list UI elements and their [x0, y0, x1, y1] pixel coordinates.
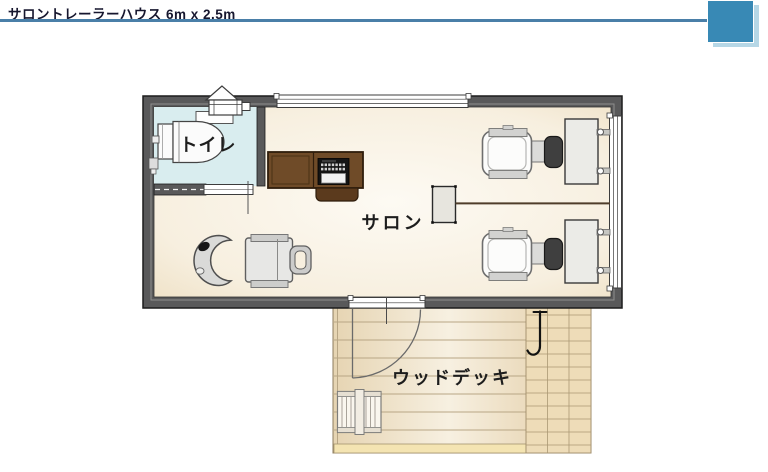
page: サロントレーラーハウス 6m x 2.5m: [0, 0, 768, 472]
floorplan-canvas: ウッドデッキ: [0, 0, 768, 472]
toilet-bottom-wall: [154, 184, 206, 195]
mirror-counter-2: [565, 220, 598, 283]
chair-back-pad-1: [545, 137, 563, 168]
deck-bench: [338, 390, 382, 435]
salon-partition: [431, 185, 457, 224]
toilet-partition-wall: [257, 107, 265, 186]
wood-deck: ウッドデッキ: [333, 302, 591, 453]
ribbon-window-right: [607, 113, 622, 291]
deck-label: ウッドデッキ: [392, 367, 512, 388]
salon-label: サロン: [362, 213, 425, 233]
deck-grid-section: [526, 302, 591, 453]
toilet-label: トイレ: [180, 135, 237, 155]
counter-stool: [316, 188, 358, 201]
styling-chair-1: [483, 126, 532, 179]
cash-register-icon: [318, 159, 349, 185]
ribbon-window-top: [274, 94, 471, 108]
styling-chair-2: [483, 228, 532, 281]
chair-back-pad-2: [545, 239, 563, 270]
mirror-counter-1: [565, 119, 598, 184]
deck-edge-strip: [334, 444, 526, 453]
